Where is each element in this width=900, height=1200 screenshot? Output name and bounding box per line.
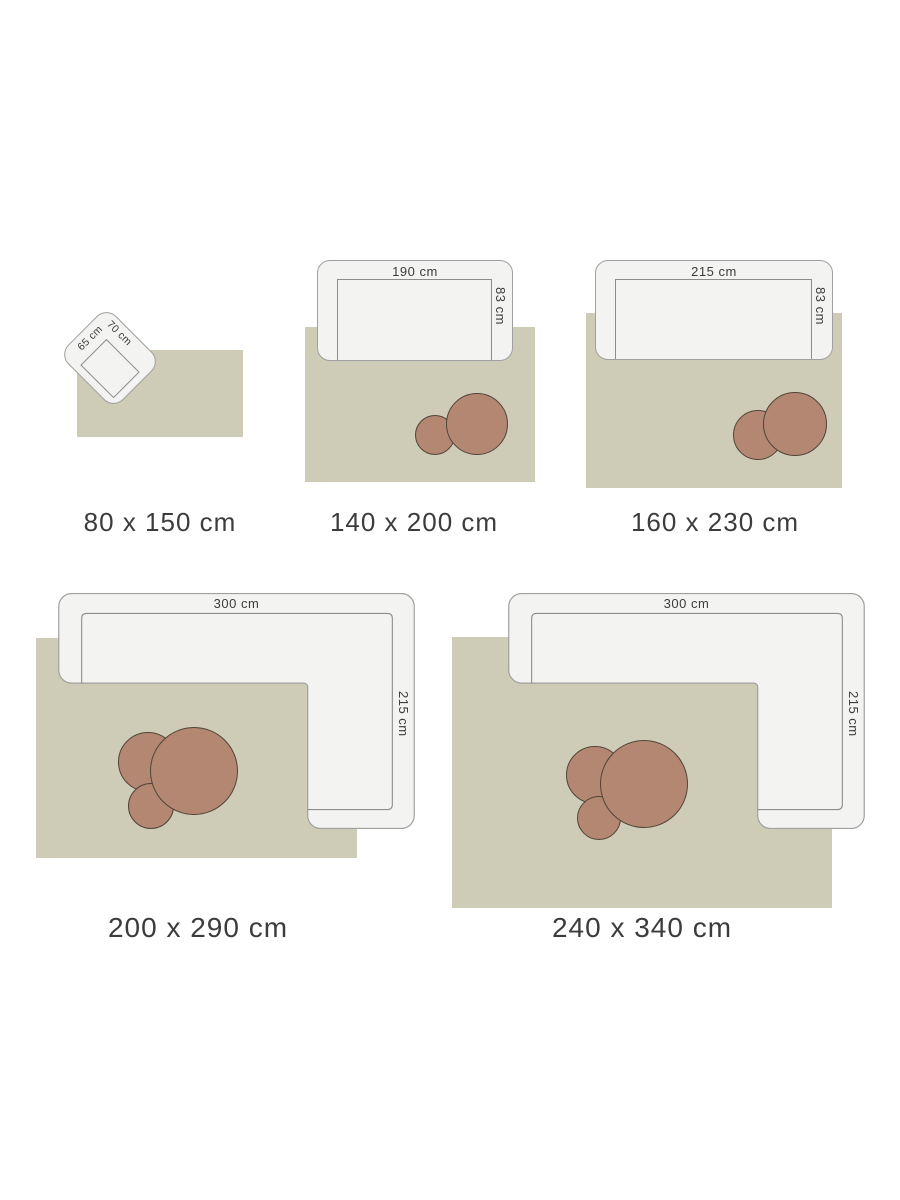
size-caption-80x150: 80 x 150 cm — [84, 507, 237, 538]
corner-sofa-width-label: 300 cm — [508, 596, 865, 611]
size-caption-200x290: 200 x 290 cm — [108, 912, 288, 944]
pouf-icon — [150, 727, 238, 815]
corner-sofa-shape — [58, 593, 415, 829]
sofa-seat — [337, 279, 492, 360]
sofa-depth-label: 83 cm — [493, 287, 508, 325]
corner-sofa-depth-label: 215 cm — [846, 691, 861, 737]
size-caption-240x340: 240 x 340 cm — [552, 912, 732, 944]
size-caption-140x200: 140 x 200 cm — [330, 507, 498, 538]
corner-sofa-icon: 300 cm 215 cm — [58, 593, 415, 829]
sofa-depth-label: 83 cm — [813, 287, 828, 325]
sofa-width-label: 215 cm — [596, 264, 832, 279]
sofa-icon: 190 cm 83 cm — [317, 260, 513, 361]
pouf-icon — [763, 392, 827, 456]
corner-sofa-depth-label: 215 cm — [396, 691, 411, 737]
sofa-seat — [615, 279, 812, 359]
sofa-icon: 215 cm 83 cm — [595, 260, 833, 360]
sofa-width-label: 190 cm — [318, 264, 512, 279]
pouf-icon — [600, 740, 688, 828]
size-caption-160x230: 160 x 230 cm — [631, 507, 799, 538]
pouf-icon — [446, 393, 508, 455]
rug-size-guide: 65 cm 70 cm 80 x 150 cm 190 cm 83 cm 140… — [0, 0, 900, 1200]
corner-sofa-width-label: 300 cm — [58, 596, 415, 611]
